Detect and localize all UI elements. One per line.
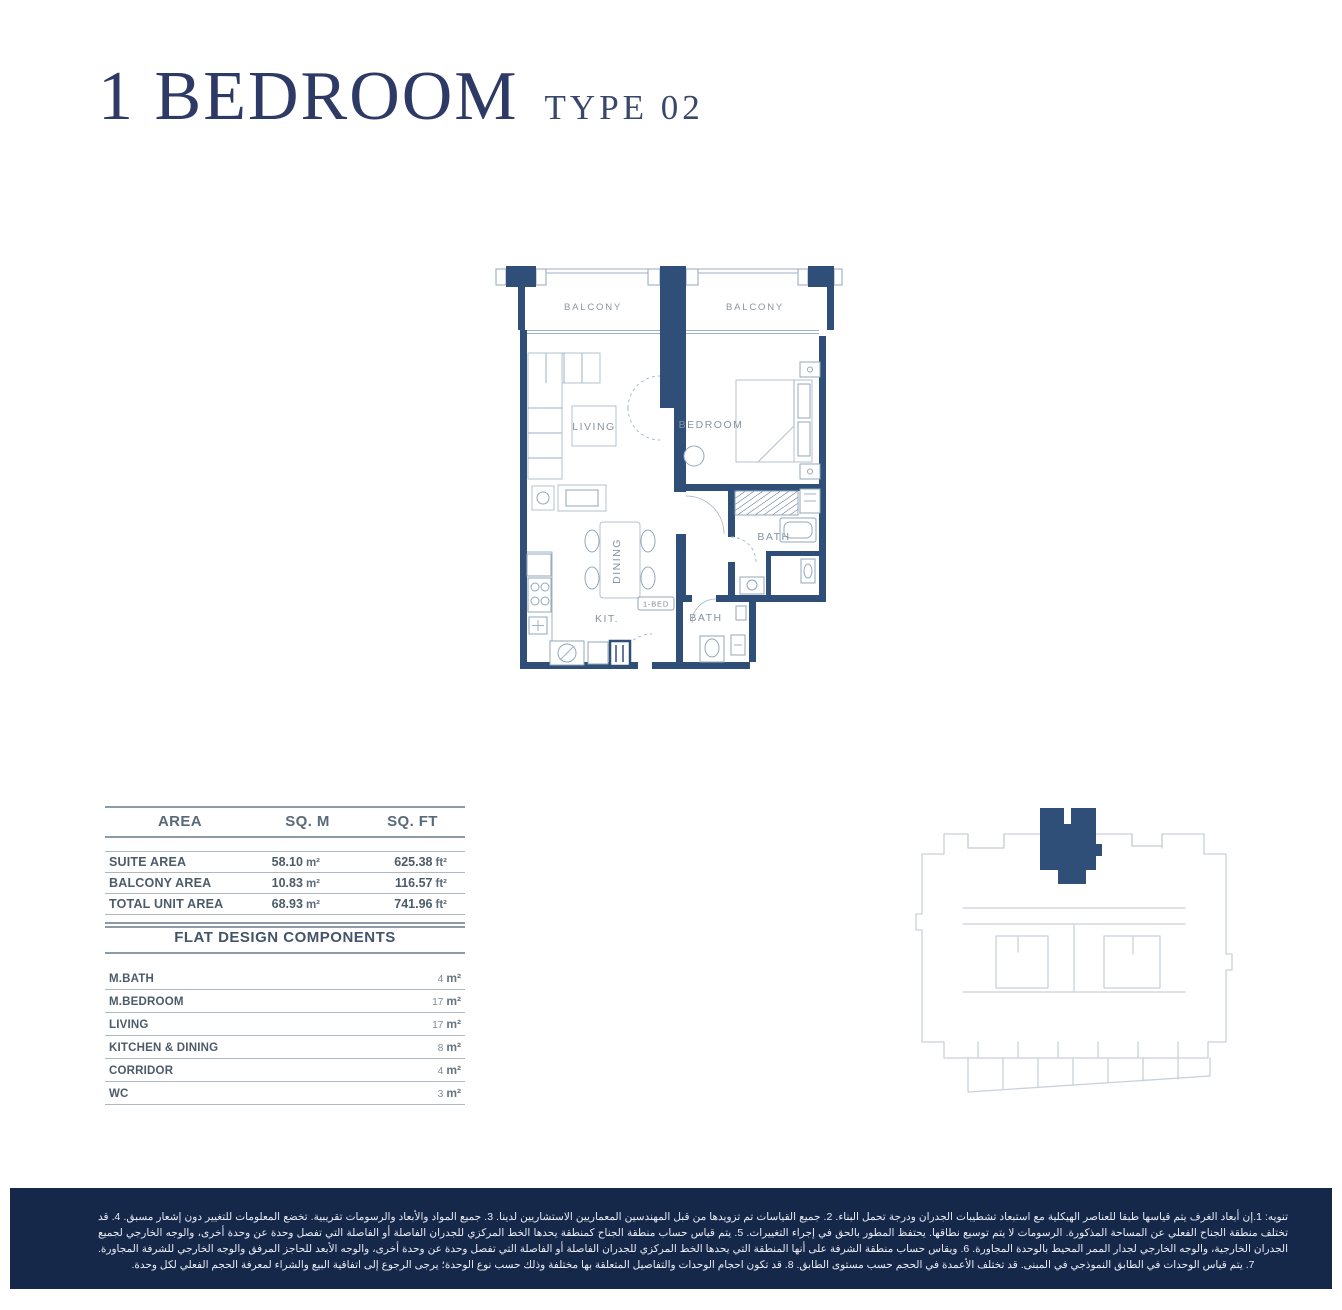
bedroom-label: BEDROOM [679, 419, 744, 431]
table-row: SUITE AREA 58.10m² 625.38ft² [105, 852, 465, 873]
living-label: LIVING [572, 421, 615, 433]
sqm-unit: m² [306, 857, 320, 869]
sqm-value: 68.93 [272, 897, 303, 911]
component-unit: m² [446, 971, 461, 985]
component-row: CORRIDOR 4m² [105, 1059, 465, 1082]
wardrobe [735, 489, 820, 515]
component-row: KITCHEN & DINING 8m² [105, 1036, 465, 1059]
component-label: CORRIDOR [109, 1065, 173, 1077]
components-table: FLAT DESIGN COMPONENTS M.BATH 4m² M.BEDR… [105, 922, 465, 1105]
components-body: M.BATH 4m² M.BEDROOM 17m² LIVING 17m² KI… [105, 967, 465, 1105]
table-row: BALCONY AREA 10.83m² 116.57ft² [105, 873, 465, 894]
component-row: M.BATH 4m² [105, 967, 465, 990]
component-label: WC [109, 1088, 129, 1100]
component-label: M.BEDROOM [109, 996, 184, 1008]
components-title: FLAT DESIGN COMPONENTS [105, 922, 465, 954]
area-table-header: AREA SQ. M SQ. FT [105, 806, 465, 838]
component-label: KITCHEN & DINING [109, 1042, 218, 1054]
disclaimer-band: تنويه: 1.إن أبعاد الغرف يتم قياسها طبقا … [10, 1188, 1332, 1289]
key-plan [908, 796, 1242, 1108]
component-unit: m² [446, 1040, 461, 1054]
component-unit: m² [446, 1063, 461, 1077]
brochure-page: 1 BEDROOM TYPE 02 [0, 0, 1342, 1310]
row-label: SUITE AREA [105, 855, 255, 869]
floor-plan: 1-BED BALCONY BALCONY LIVING BEDROOM DIN… [488, 256, 870, 684]
area-table: AREA SQ. M SQ. FT SUITE AREA 58.10m² 625… [105, 806, 465, 928]
sqm-unit: m² [306, 899, 320, 911]
page-title: 1 BEDROOM TYPE 02 [98, 58, 704, 135]
sqft-value: 116.57 [395, 876, 433, 890]
sqm-unit: m² [306, 878, 320, 890]
header-area: AREA [105, 813, 255, 830]
component-label: M.BATH [109, 973, 154, 985]
sqft-unit: ft² [436, 899, 448, 911]
component-row: LIVING 17m² [105, 1013, 465, 1036]
header-sqm: SQ. M [255, 813, 360, 830]
title-type: TYPE 02 [545, 88, 704, 128]
component-row: M.BEDROOM 17m² [105, 990, 465, 1013]
component-value: 4 [438, 974, 444, 985]
balcony-left-label: BALCONY [564, 302, 622, 313]
component-row: WC 3m² [105, 1082, 465, 1105]
kitchen-label: KIT. [595, 613, 619, 625]
disclaimer-text: تنويه: 1.إن أبعاد الغرف يتم قياسها طبقا … [10, 1188, 1332, 1273]
unit-tag-label: 1-BED [643, 600, 669, 609]
component-value: 17 [432, 1020, 443, 1031]
component-unit: m² [446, 994, 461, 1008]
component-unit: m² [446, 1017, 461, 1031]
area-table-body: SUITE AREA 58.10m² 625.38ft² BALCONY ARE… [105, 851, 465, 928]
component-value: 17 [432, 997, 443, 1008]
table-row: TOTAL UNIT AREA 68.93m² 741.96ft² [105, 894, 465, 915]
dining-label: DINING [611, 538, 623, 584]
component-unit: m² [446, 1086, 461, 1100]
highlighted-unit [1040, 808, 1102, 884]
header-sqft: SQ. FT [360, 813, 465, 830]
unit-tag: 1-BED [638, 597, 674, 610]
row-label: BALCONY AREA [105, 876, 255, 890]
component-value: 3 [438, 1089, 444, 1100]
bath-lower-label: BATH [689, 612, 722, 624]
sqft-value: 625.38 [394, 855, 432, 869]
title-main: 1 BEDROOM [98, 58, 519, 135]
balcony-right-label: BALCONY [726, 302, 784, 313]
row-label: TOTAL UNIT AREA [105, 897, 255, 911]
component-value: 8 [438, 1043, 444, 1054]
sqm-value: 10.83 [272, 876, 303, 890]
sqft-unit: ft² [436, 857, 448, 869]
sqft-value: 741.96 [394, 897, 432, 911]
component-value: 4 [438, 1066, 444, 1077]
sqft-unit: ft² [436, 878, 448, 890]
component-label: LIVING [109, 1019, 149, 1031]
sqm-value: 58.10 [272, 855, 303, 869]
bath-upper-label: BATH [757, 531, 790, 543]
